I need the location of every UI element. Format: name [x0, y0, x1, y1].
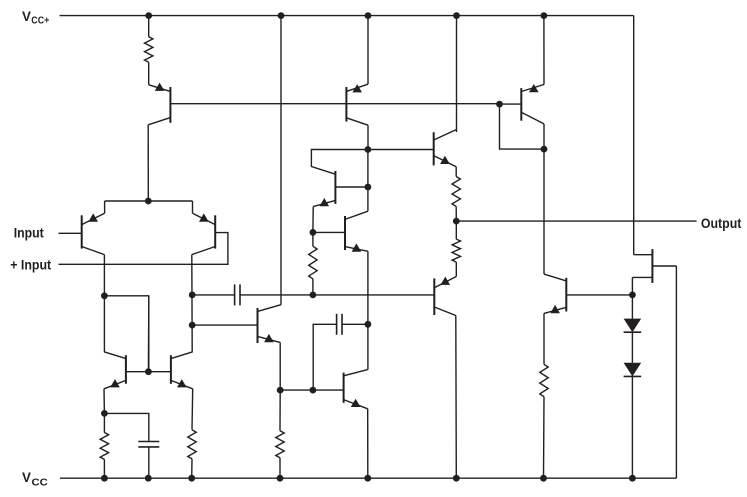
svg-text:V: V: [22, 470, 31, 485]
svg-text:+ Input: + Input: [10, 257, 51, 272]
svg-text:CC: CC: [32, 478, 49, 489]
svg-text:Output: Output: [701, 216, 742, 231]
svg-text:V: V: [22, 9, 31, 24]
svg-text:CC+: CC+: [31, 16, 49, 27]
svg-text:Input: Input: [14, 226, 44, 241]
